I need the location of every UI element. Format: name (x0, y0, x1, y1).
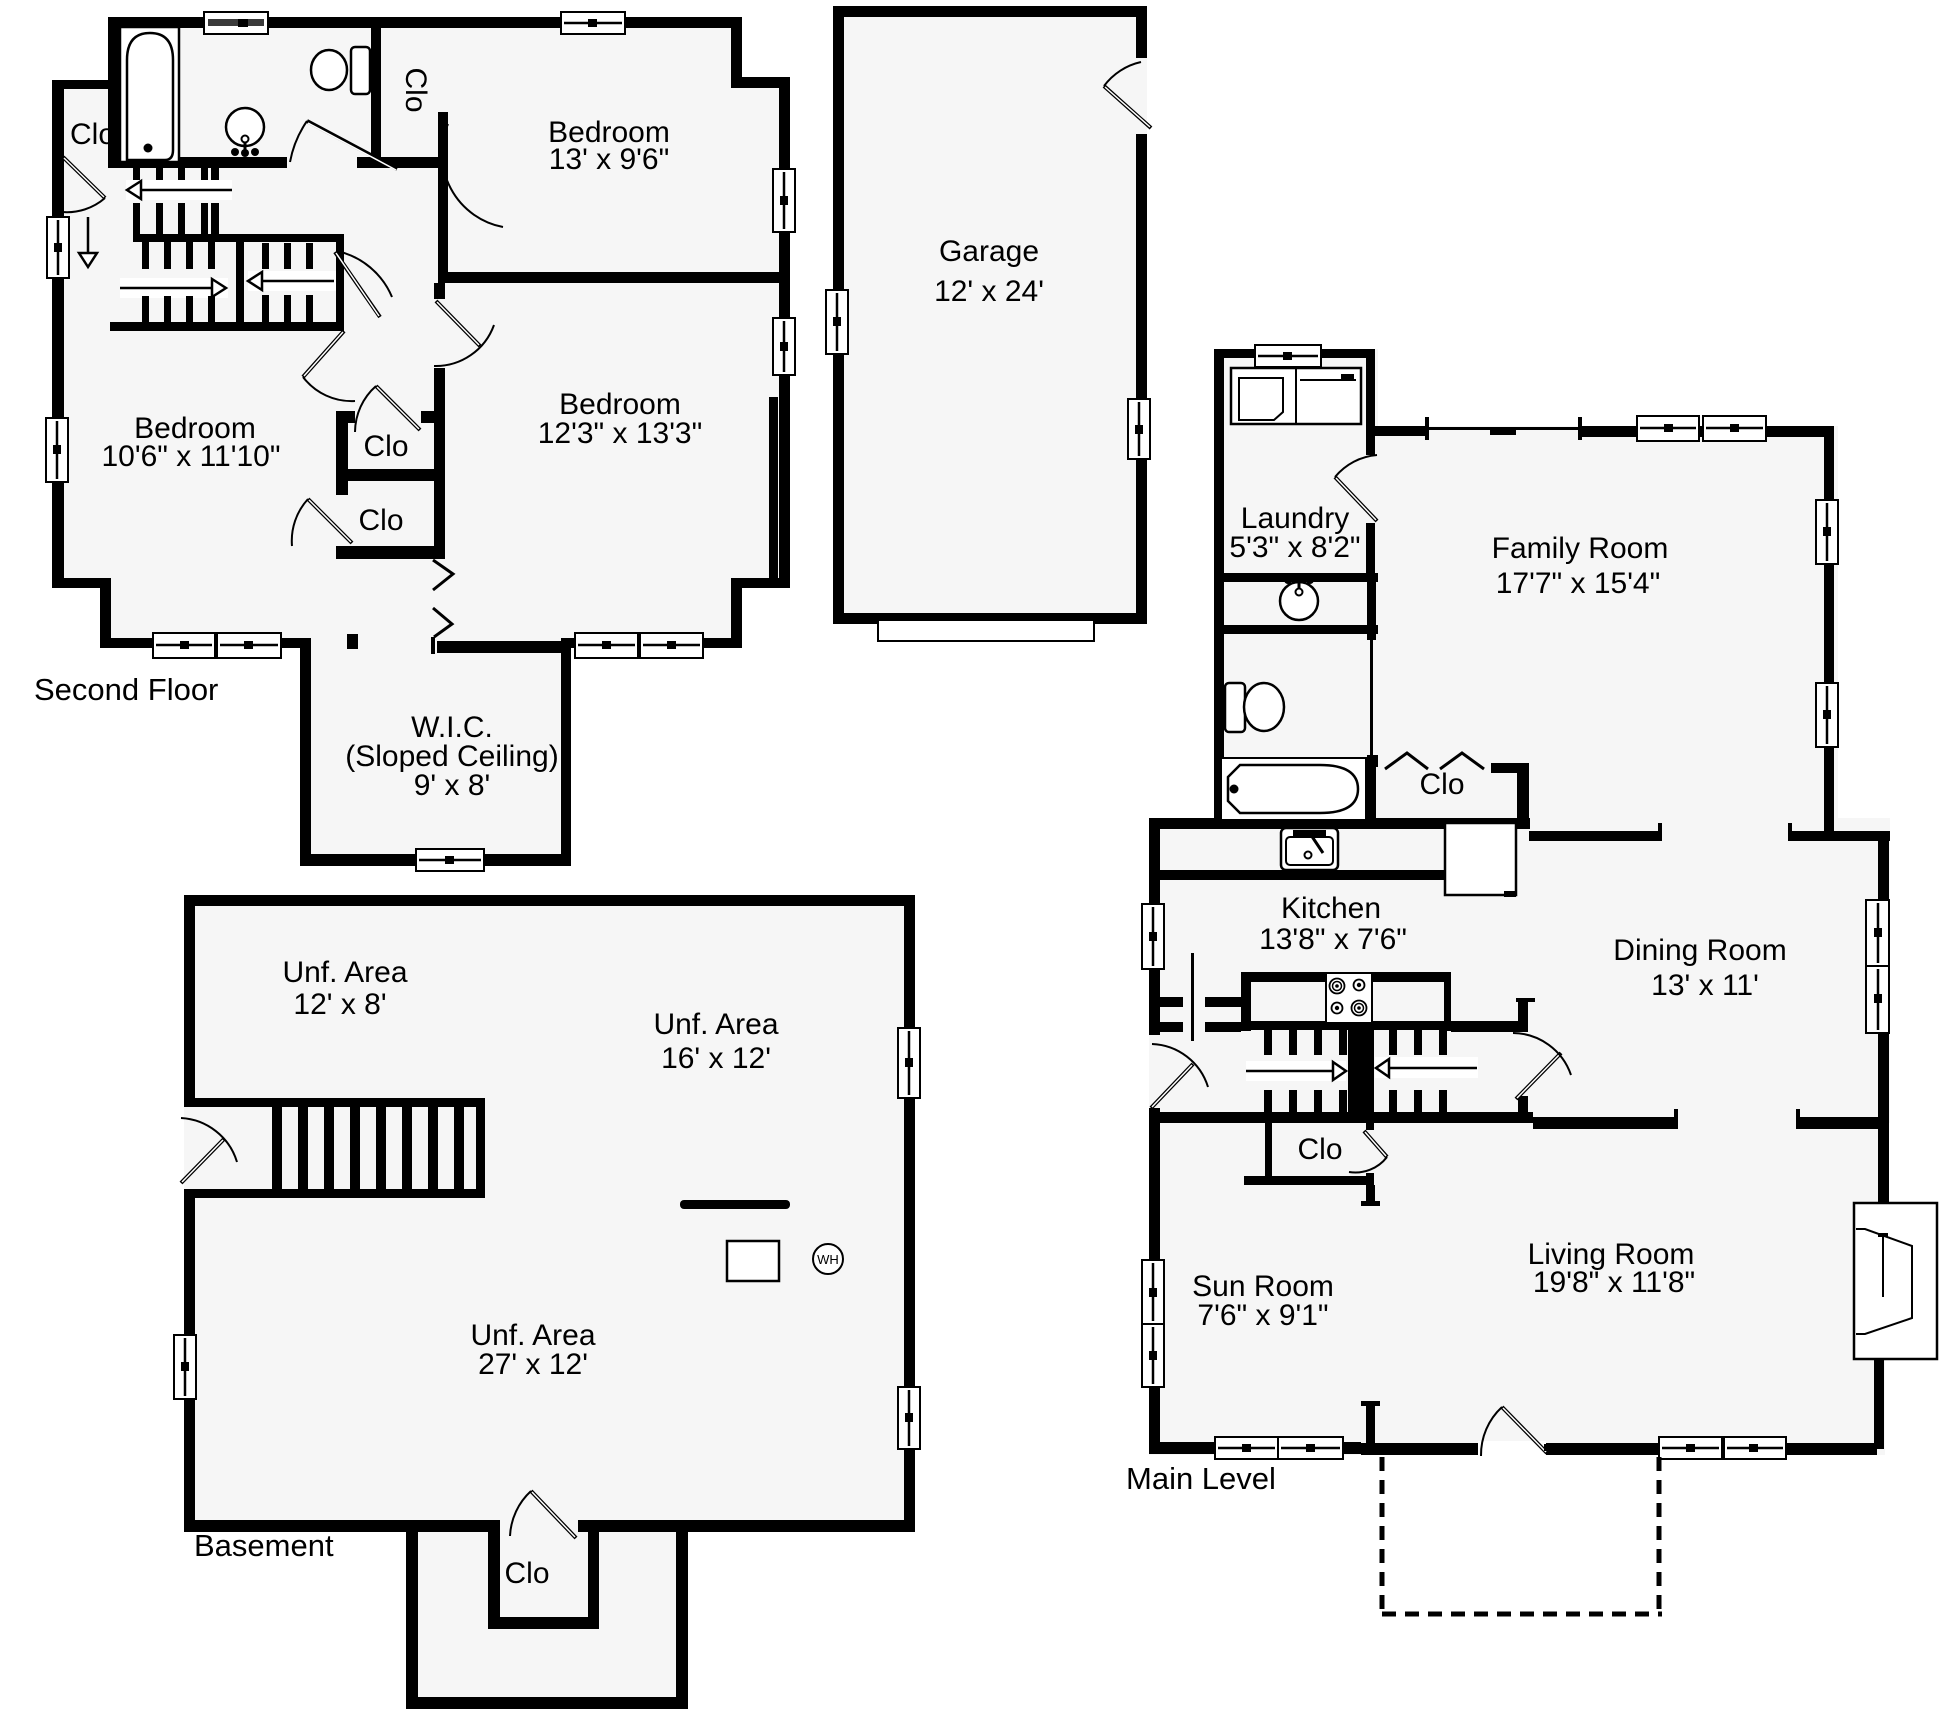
svg-text:Kitchen: Kitchen (1281, 892, 1381, 925)
svg-text:12'3" x 13'3": 12'3" x 13'3" (538, 417, 703, 450)
svg-text:13' x 11': 13' x 11' (1651, 969, 1759, 1002)
svg-text:Garage: Garage (939, 235, 1039, 268)
svg-text:Clo: Clo (504, 1557, 549, 1590)
svg-text:Clo: Clo (363, 430, 408, 463)
svg-text:27' x 12': 27' x 12' (478, 1348, 588, 1381)
svg-text:Dining Room: Dining Room (1613, 934, 1786, 967)
svg-text:10'6" x 11'10": 10'6" x 11'10" (102, 440, 281, 473)
svg-text:13'8" x 7'6": 13'8" x 7'6" (1259, 923, 1407, 956)
svg-text:17'7" x 15'4": 17'7" x 15'4" (1496, 567, 1661, 600)
svg-text:5'3" x 8'2": 5'3" x 8'2" (1229, 531, 1360, 564)
svg-text:Clo: Clo (70, 118, 115, 151)
svg-text:Clo: Clo (1419, 768, 1464, 801)
svg-text:Family Room: Family Room (1492, 532, 1669, 565)
svg-text:16' x 12': 16' x 12' (661, 1042, 771, 1075)
svg-text:Second Floor: Second Floor (34, 672, 218, 707)
svg-text:12' x 24': 12' x 24' (934, 275, 1044, 308)
svg-text:9' x 8': 9' x 8' (414, 769, 491, 802)
svg-text:Basement: Basement (194, 1528, 334, 1563)
svg-text:Main Level: Main Level (1126, 1461, 1276, 1496)
svg-text:19'8" x 11'8": 19'8" x 11'8" (1533, 1266, 1695, 1299)
svg-text:WH: WH (817, 1252, 839, 1267)
svg-text:12' x 8': 12' x 8' (293, 988, 386, 1021)
svg-text:13' x 9'6": 13' x 9'6" (549, 143, 670, 176)
svg-text:Clo: Clo (399, 67, 432, 112)
svg-text:7'6" x 9'1": 7'6" x 9'1" (1197, 1299, 1328, 1332)
svg-text:Clo: Clo (1297, 1133, 1342, 1166)
svg-text:Clo: Clo (358, 504, 403, 537)
svg-text:Unf. Area: Unf. Area (653, 1008, 778, 1041)
svg-text:Unf. Area: Unf. Area (282, 956, 407, 989)
